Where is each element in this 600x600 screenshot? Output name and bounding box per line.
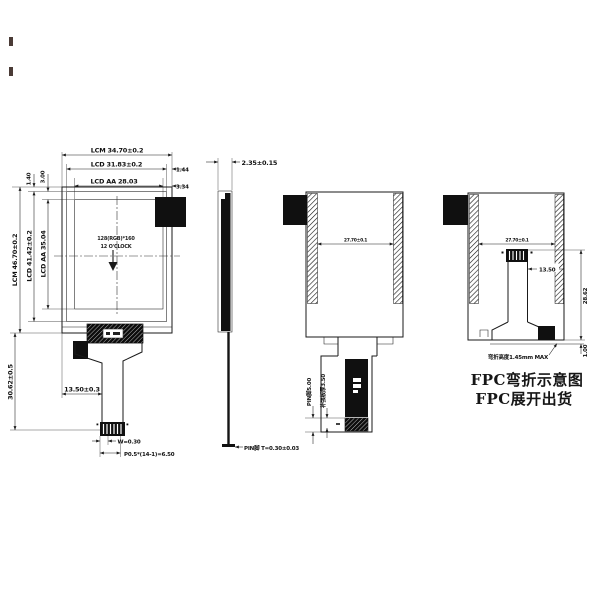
unfolded-outline bbox=[306, 192, 403, 337]
dim-pin-pitch: P0.5*(14-1)=6.50 bbox=[124, 452, 175, 458]
stray-mark bbox=[9, 67, 13, 76]
folded-tail-width-dim: 13.50 bbox=[528, 264, 564, 274]
dim-tape-gap: 27.70±0.1 bbox=[505, 238, 528, 244]
unfolded-view: 27.70±0.1 补强板厚3.50 PIN脚5.00 bbox=[283, 192, 403, 444]
unfolded-pin-area bbox=[345, 418, 368, 431]
dim-top-offset-300: 3.00 bbox=[41, 170, 47, 183]
dim-lcd-width-offset: 1.44 bbox=[176, 168, 189, 174]
dim-tape-gap: 27.70±0.1 bbox=[344, 238, 367, 244]
dim-pin-width: W=0.30 bbox=[118, 440, 141, 446]
bend-note: 弯折高度1.45mm MAX bbox=[488, 344, 557, 362]
folded-view: 27.70±0.1 13.50 bbox=[443, 193, 589, 361]
dim-lcd-height: LCD 41.42±0.2 bbox=[26, 230, 34, 282]
dim-thickness: 2.35±0.15 bbox=[242, 159, 278, 167]
dim-lcd-width: LCD 31.83±0.2 bbox=[91, 161, 143, 169]
side-profile-body bbox=[221, 193, 231, 331]
caption-unfolded: FPC展开出货 bbox=[475, 390, 572, 408]
dim-pin-thickness: PIN脚 T=0.30±0.03 bbox=[244, 444, 299, 452]
tape-strip-right bbox=[394, 194, 403, 304]
active-area-outline bbox=[75, 200, 164, 310]
folded-stiffener-block bbox=[538, 326, 555, 340]
unfolded-backlight-tab bbox=[283, 195, 307, 225]
bend-note-label: 弯折高度1.45mm MAX bbox=[488, 353, 549, 361]
dim-folded-height: 28.62 bbox=[583, 287, 589, 304]
front-fpc-tail bbox=[62, 324, 172, 436]
dim-lcm-height: LCM 46.70±0.2 bbox=[11, 234, 19, 287]
dim-top-offset-140: 1.40 bbox=[27, 172, 33, 185]
dim-aa-width: LCD AA 28.03 bbox=[90, 178, 137, 186]
lcd-outline bbox=[67, 192, 167, 322]
dim-bottom-gap: 1.00 bbox=[583, 344, 589, 357]
drawing-canvas: 128(RGB)*160 12 O'CLOCK LCM 34.70±0.2 LC… bbox=[0, 0, 600, 600]
dim-folded-tail-width: 13.50 bbox=[539, 268, 556, 274]
backlight-tab bbox=[155, 197, 186, 227]
stray-mark bbox=[9, 37, 13, 46]
side-fpc-foot bbox=[222, 444, 235, 447]
dim-pin-length: PIN脚5.00 bbox=[305, 378, 313, 407]
dim-tail-width: 13.50±0.3 bbox=[64, 386, 100, 394]
front-top-dimensions: LCM 34.70±0.2 LCD 31.83±0.2 1.44 LCD AA … bbox=[62, 147, 189, 200]
tape-strip-left bbox=[470, 195, 479, 304]
tape-strip-right bbox=[555, 195, 564, 304]
viewing-direction-arrow-icon bbox=[109, 250, 118, 271]
folded-backlight-tab bbox=[443, 195, 468, 225]
dim-aa-width-offset: 3.34 bbox=[176, 185, 189, 191]
dim-lcm-width: LCM 34.70±0.2 bbox=[91, 147, 144, 155]
tape-strip-left bbox=[308, 194, 318, 304]
front-view: 128(RGB)*160 12 O'CLOCK LCM 34.70±0.2 LC… bbox=[7, 147, 190, 458]
viewing-direction-label: 12 O'CLOCK bbox=[101, 244, 133, 250]
resolution-label: 128(RGB)*160 bbox=[97, 236, 135, 242]
lcd-module-drawing: 128(RGB)*160 12 O'CLOCK LCM 34.70±0.2 LC… bbox=[0, 0, 600, 600]
unfolded-tail bbox=[321, 337, 393, 432]
caption-folded: FPC弯折示意图 bbox=[471, 371, 584, 389]
unfolded-tail-dimensions: 补强板厚3.50 PIN脚5.00 bbox=[305, 374, 345, 444]
folded-fpc bbox=[480, 249, 584, 344]
dim-stiffener: 补强板厚3.50 bbox=[319, 374, 327, 409]
dim-fpc-length: 30.62±0.5 bbox=[7, 363, 15, 399]
dim-aa-height: LCD AA 35.04 bbox=[40, 230, 48, 278]
